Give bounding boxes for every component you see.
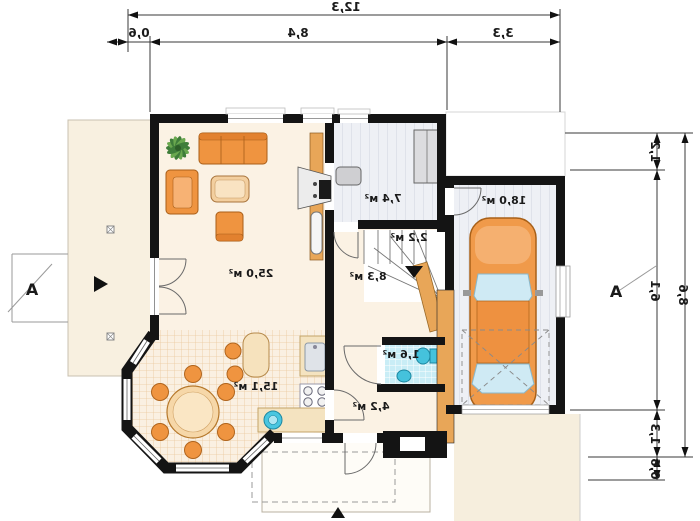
dimensions-right: 1,2 6,1 1,3 0,6 8,6 xyxy=(565,133,693,480)
car-hood xyxy=(475,226,531,264)
dimensions-top: 12,3 0,6 8,4 3,3 xyxy=(107,0,560,112)
wall-segment xyxy=(446,405,462,414)
wall-segment xyxy=(556,185,565,268)
dining-table xyxy=(167,386,219,438)
dimension-label-seg: 3,3 xyxy=(492,26,513,40)
bench-cabinet xyxy=(336,167,361,185)
wall-segment xyxy=(150,114,228,123)
wall-segment-masonry xyxy=(437,290,454,443)
window xyxy=(338,109,370,123)
island-counter xyxy=(258,408,330,432)
sofa xyxy=(199,133,267,164)
corridor-area-label: 4,2 м² xyxy=(352,400,389,413)
driveway xyxy=(454,414,580,521)
vestibule-area-label: 7,4 м² xyxy=(364,192,401,205)
dimension-label-total-depth: 8,6 xyxy=(676,284,690,305)
wall-segment xyxy=(437,114,446,232)
section-label-left: A xyxy=(25,280,38,299)
terrace-light-marker xyxy=(107,333,114,340)
bar-counter xyxy=(243,333,269,377)
car-mirror xyxy=(535,290,543,296)
hall-area-label: 8,3 м² xyxy=(349,270,386,283)
dimension-label-total-width: 12,3 xyxy=(331,0,361,14)
window xyxy=(226,108,285,123)
section-label-right: A xyxy=(609,282,622,301)
living-room-area-label: 25,0 м² xyxy=(228,267,273,280)
car-rear-window xyxy=(472,364,534,393)
dimension-label-seg: 6,1 xyxy=(648,280,662,301)
wall-segment xyxy=(358,220,445,229)
car-windshield xyxy=(474,274,532,302)
coffee-table xyxy=(211,176,249,202)
wall-segment xyxy=(549,405,565,414)
armchair xyxy=(166,170,198,214)
wall-segment xyxy=(325,123,334,163)
wall-segment xyxy=(446,176,565,185)
wardrobe xyxy=(414,130,441,183)
pouf-chair xyxy=(216,212,243,241)
window xyxy=(301,108,334,123)
bar-stool xyxy=(225,343,241,359)
garage-area-label: 18,0 м² xyxy=(481,194,526,207)
wall-segment xyxy=(325,210,334,390)
dining-kitchen-area-label: 15,1 м² xyxy=(233,380,278,393)
garage-door xyxy=(462,405,549,414)
wall-segment xyxy=(283,114,303,123)
wall-segment xyxy=(332,114,340,123)
wall-segment xyxy=(325,420,334,433)
entry-niche xyxy=(400,437,425,451)
dimension-label-seg: 1,3 xyxy=(648,423,662,444)
dimension-label-seg: 0,6 xyxy=(648,458,662,479)
wall-segment xyxy=(377,384,445,392)
wall-segment xyxy=(368,114,445,123)
dimension-label-seg: 1,2 xyxy=(648,141,662,162)
floor-plan: 25,0 м² 15,1 м² 7,4 м² 2,2 м² 8,3 м² 1,6… xyxy=(0,0,700,521)
wall-segment xyxy=(556,315,565,405)
dimension-label-seg: 0,6 xyxy=(128,26,149,40)
car-mirror xyxy=(463,290,471,296)
kitchen-window xyxy=(282,433,322,443)
roof-overhang-outline xyxy=(446,112,565,176)
wall-segment xyxy=(377,433,383,443)
dimension-label-seg: 8,4 xyxy=(287,26,308,40)
wc-area-label: 1,6 м² xyxy=(382,348,419,361)
radiator xyxy=(311,212,322,254)
terrace-steps xyxy=(12,254,68,322)
wall-segment xyxy=(382,337,445,345)
wall-segment xyxy=(334,433,343,443)
stairs-area-label: 2,2 м² xyxy=(390,231,427,244)
car xyxy=(463,218,543,412)
garage-window xyxy=(556,266,570,317)
floor-plan-canvas: 25,0 м² 15,1 м² 7,4 м² 2,2 м² 8,3 м² 1,6… xyxy=(0,0,700,521)
washbasin xyxy=(397,370,411,382)
terrace-light-marker xyxy=(107,226,114,233)
fireplace xyxy=(298,167,331,209)
wall-segment xyxy=(150,123,159,258)
